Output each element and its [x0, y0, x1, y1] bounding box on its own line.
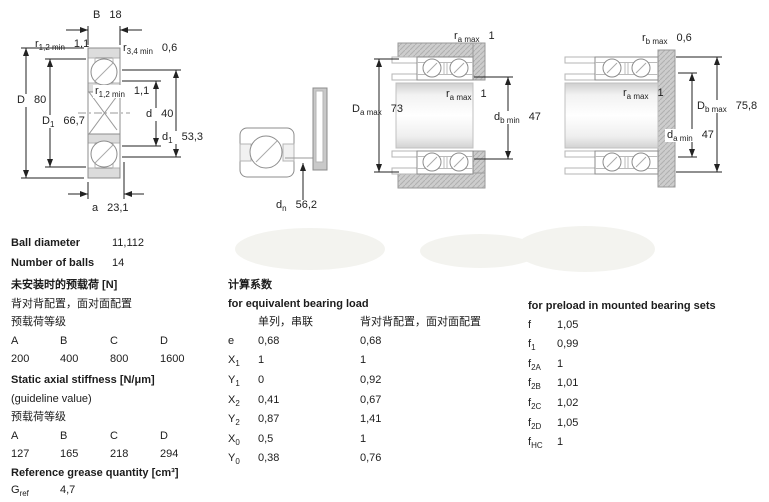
dim-a: a23,1 [92, 202, 129, 215]
dim-ra-top: ra max1 [454, 30, 495, 43]
preload-factor-row-f2A: f2A1 [528, 355, 716, 375]
preload-unmounted-table: 未安装时的预载荷 [N] 背对背配置，面对面配置 预载荷等级 ABCD 2004… [11, 276, 184, 369]
bearing-cross-section-drawing [78, 48, 130, 178]
dim-r34: r3,4 min0,6 [123, 42, 177, 55]
shaft-mounting-drawing [565, 50, 722, 187]
dim-d1: d153,3 [160, 131, 205, 144]
preload-factor-row-f: f1,05 [528, 316, 716, 336]
ball-diameter-label: Ball diameter [11, 233, 112, 253]
preload-factor-row-fHC: fHC1 [528, 433, 716, 453]
ball-diameter-row: Ball diameter11,112 [11, 233, 144, 253]
dim-dn: dn56,2 [276, 199, 317, 212]
grease-symbol: Gref [11, 482, 60, 499]
stiffness-values: 127165218294 [11, 445, 178, 464]
grease-quantity-block: Reference grease quantity [cm³] Gref4,7 [11, 465, 179, 499]
factor-row-X2: X20,410,67 [228, 391, 481, 411]
dim-width-B: B18 [93, 9, 122, 22]
preload-factor-row-f2B: f2B1,01 [528, 374, 716, 394]
dim-rb-max: rb max0,6 [642, 32, 692, 45]
stiffness-line2: 预载荷等级 [11, 408, 178, 427]
bearing-with-locating-ring-drawing [240, 88, 327, 200]
grease-row: Gref4,7 [11, 482, 179, 499]
number-of-balls-label: Number of balls [11, 253, 112, 273]
factor-row-Y0: Y00,380,76 [228, 449, 481, 469]
bearing-datasheet-page: B18 r1,2 min1,1 r3,4 min0,6 D80 D166,7 r… [0, 0, 769, 502]
calc-factors-title-zh: 计算系数 [228, 276, 481, 295]
col-single-tandem: 单列，串联 [258, 313, 360, 332]
grease-title: Reference grease quantity [cm³] [11, 465, 179, 482]
preload-unmounted-line1: 背对背配置，面对面配置 [11, 295, 184, 314]
col-back-to-back: 背对背配置，面对面配置 [360, 316, 481, 328]
stiffness-title: Static axial stiffness [N/μm] [11, 371, 178, 390]
dim-Db-max: Db max75,8 [695, 100, 759, 113]
dim-r12-top: r1,2 min1,1 [35, 38, 89, 51]
dim-ra: ra max1 [623, 87, 664, 100]
dim-db-min: db min47 [492, 111, 543, 124]
number-of-balls-value: 14 [112, 257, 124, 269]
preload-class-headers: ABCD [11, 332, 184, 351]
stiffness-table: Static axial stiffness [N/μm] (guideline… [11, 371, 178, 464]
stiffness-headers: ABCD [11, 427, 178, 446]
internal-design-specs: Ball diameter11,112 Number of balls14 [11, 233, 144, 273]
calc-factors-col-headers: 单列，串联背对背配置，面对面配置 [228, 313, 481, 332]
number-of-balls-row: Number of balls14 [11, 253, 144, 273]
preload-factors-table: for preload in mounted bearing sets f1,0… [528, 297, 716, 453]
preload-factor-row-f2D: f2D1,05 [528, 414, 716, 434]
preload-factors-title: for preload in mounted bearing sets [528, 297, 716, 316]
watermark [235, 228, 385, 270]
stiffness-line1: (guideline value) [11, 390, 178, 409]
preload-factor-row-f1: f10,99 [528, 335, 716, 355]
dim-Da-max: Da max73 [352, 103, 403, 116]
factor-row-e: e0,680,68 [228, 332, 481, 352]
watermark [515, 226, 655, 272]
preload-unmounted-title: 未安装时的预载荷 [N] [11, 276, 184, 295]
dim-bore-d: d40 [144, 108, 175, 121]
dim-da-min: da min47 [665, 129, 716, 142]
dim-outer-diameter-D: D80 [15, 94, 48, 107]
calc-factors-title-en: for equivalent bearing load [228, 295, 481, 314]
technical-drawings: B18 r1,2 min1,1 r3,4 min0,6 D80 D166,7 r… [0, 0, 769, 228]
preload-class-values: 2004008001600 [11, 350, 184, 369]
grease-value: 4,7 [60, 484, 75, 496]
ball-diameter-value: 11,112 [112, 237, 144, 249]
dim-ra-mid: ra max1 [446, 88, 487, 101]
factor-row-X0: X00,51 [228, 430, 481, 450]
spacer-ring [658, 50, 675, 187]
factor-row-Y2: Y20,871,41 [228, 410, 481, 430]
factor-row-Y1: Y100,92 [228, 371, 481, 391]
preload-factor-row-f2C: f2C1,02 [528, 394, 716, 414]
preload-unmounted-line2: 预载荷等级 [11, 313, 184, 332]
calculation-factors-table: 计算系数 for equivalent bearing load 单列，串联背对… [228, 276, 481, 469]
dim-r12-mid: r1,2 min1,1 [93, 85, 151, 98]
dim-D1: D166,7 [40, 115, 87, 128]
factor-row-X1: X111 [228, 351, 481, 371]
